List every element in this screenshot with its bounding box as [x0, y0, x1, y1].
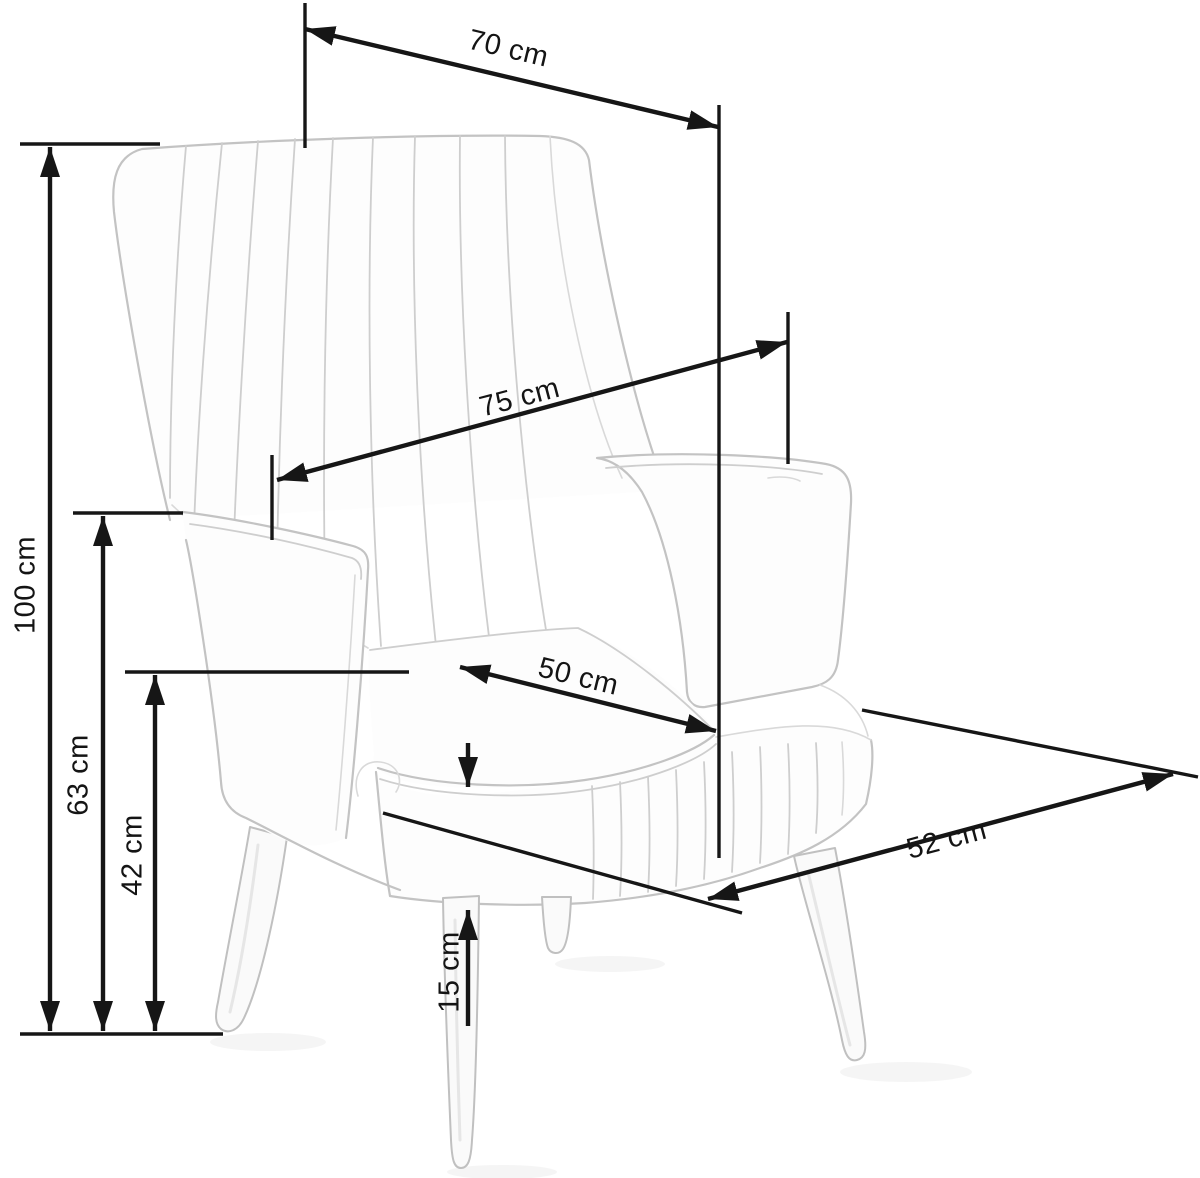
dimension-label: 15 cm: [434, 931, 466, 1012]
dimension-label: 63 cm: [63, 734, 95, 815]
floor-shadow: [210, 1033, 326, 1051]
dimension-diagram: 70 cm 75 cm 100 cm 63 cm 42 cm 15 cm 50 …: [0, 0, 1200, 1178]
floor-shadow: [840, 1062, 972, 1082]
dimension-armrest-height-63cm: 63 cm: [63, 513, 183, 1031]
leg-back-left: [542, 897, 571, 953]
dimension-label: 42 cm: [117, 814, 149, 895]
dimension-label: 70 cm: [465, 24, 552, 74]
extension-line: [862, 710, 1198, 777]
dimension-label: 52 cm: [903, 814, 990, 866]
leg-back-right: [794, 848, 865, 1060]
diagram-canvas: 70 cm 75 cm 100 cm 63 cm 42 cm 15 cm 50 …: [0, 0, 1200, 1178]
dimension-label: 100 cm: [10, 536, 42, 634]
leg-front-left: [216, 827, 287, 1031]
floor-shadow: [555, 956, 665, 972]
left-armrest-fill: [183, 512, 368, 845]
